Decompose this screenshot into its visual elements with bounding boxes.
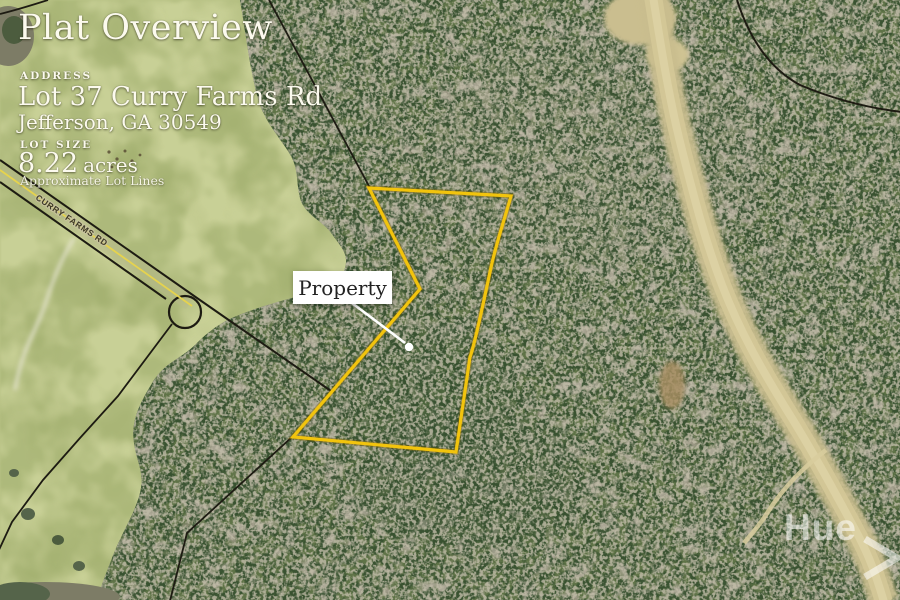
dirt-patch (659, 361, 685, 409)
address-line1: Lot 37 Curry Farms Rd (18, 82, 322, 112)
page-title: Plat Overview (18, 8, 273, 48)
address-label: ADDRESS (20, 70, 92, 82)
address-line2: Jefferson, GA 30549 (18, 110, 222, 134)
lot-size-note: Approximate Lot Lines (20, 173, 164, 188)
hue-chevron-icon (861, 534, 900, 582)
property-callout-label: Property (293, 271, 392, 304)
watermark-text: Hue (784, 507, 857, 549)
plat-overview-image: CURRY FARMS RD Plat Overview ADDRESS Lot… (0, 0, 900, 600)
